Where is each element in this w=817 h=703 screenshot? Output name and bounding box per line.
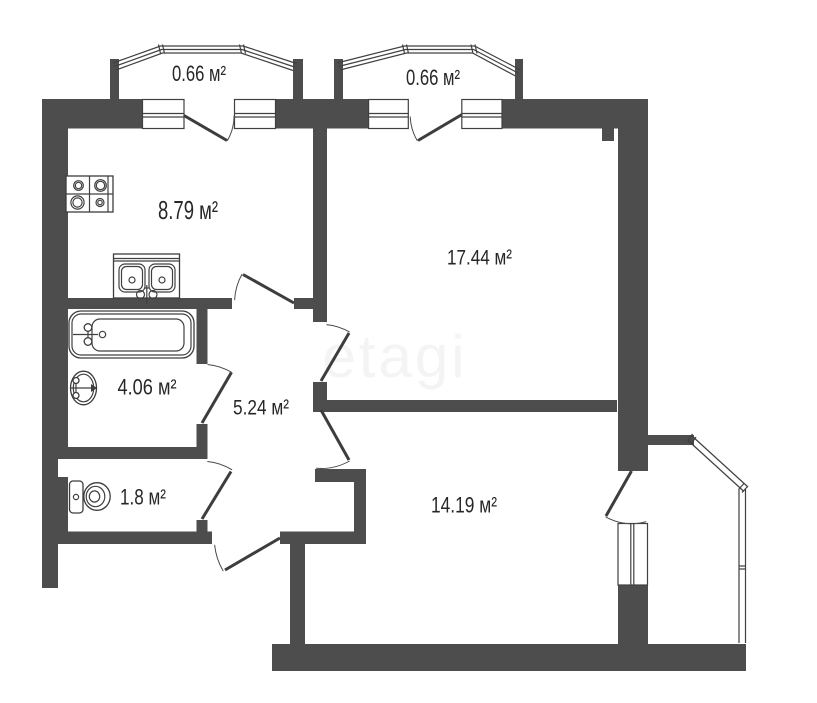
svg-text:8.79 м²: 8.79 м² xyxy=(158,195,218,225)
svg-text:4.06 м²: 4.06 м² xyxy=(118,375,177,400)
svg-text:1.8 м²: 1.8 м² xyxy=(120,485,166,510)
svg-text:0.66 м²: 0.66 м² xyxy=(172,61,226,86)
svg-text:5.24 м²: 5.24 м² xyxy=(233,396,289,420)
svg-text:etagi: etagi xyxy=(322,323,467,390)
svg-text:14.19 м²: 14.19 м² xyxy=(431,493,497,518)
svg-text:17.44 м²: 17.44 м² xyxy=(447,246,512,270)
svg-text:0.66 м²: 0.66 м² xyxy=(406,65,460,90)
